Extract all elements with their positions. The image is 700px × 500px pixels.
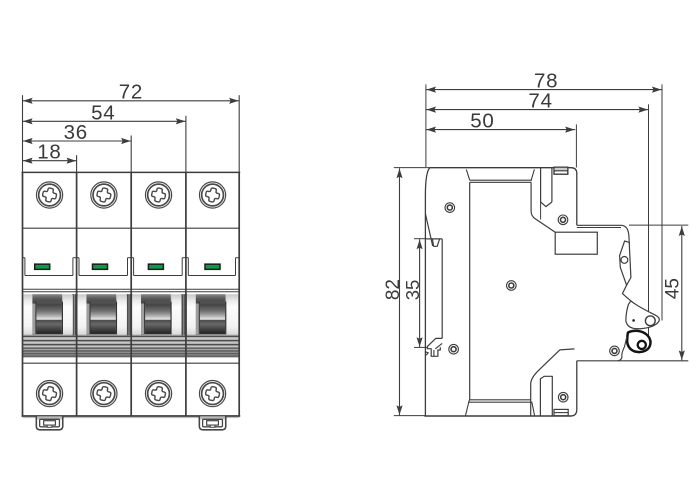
svg-text:36: 36 (64, 121, 88, 144)
svg-text:50: 50 (470, 110, 494, 133)
svg-text:72: 72 (119, 81, 143, 104)
svg-text:35: 35 (402, 280, 423, 301)
svg-text:45: 45 (663, 278, 684, 299)
svg-text:54: 54 (91, 101, 115, 124)
svg-text:18: 18 (37, 141, 61, 164)
svg-text:74: 74 (528, 90, 552, 113)
